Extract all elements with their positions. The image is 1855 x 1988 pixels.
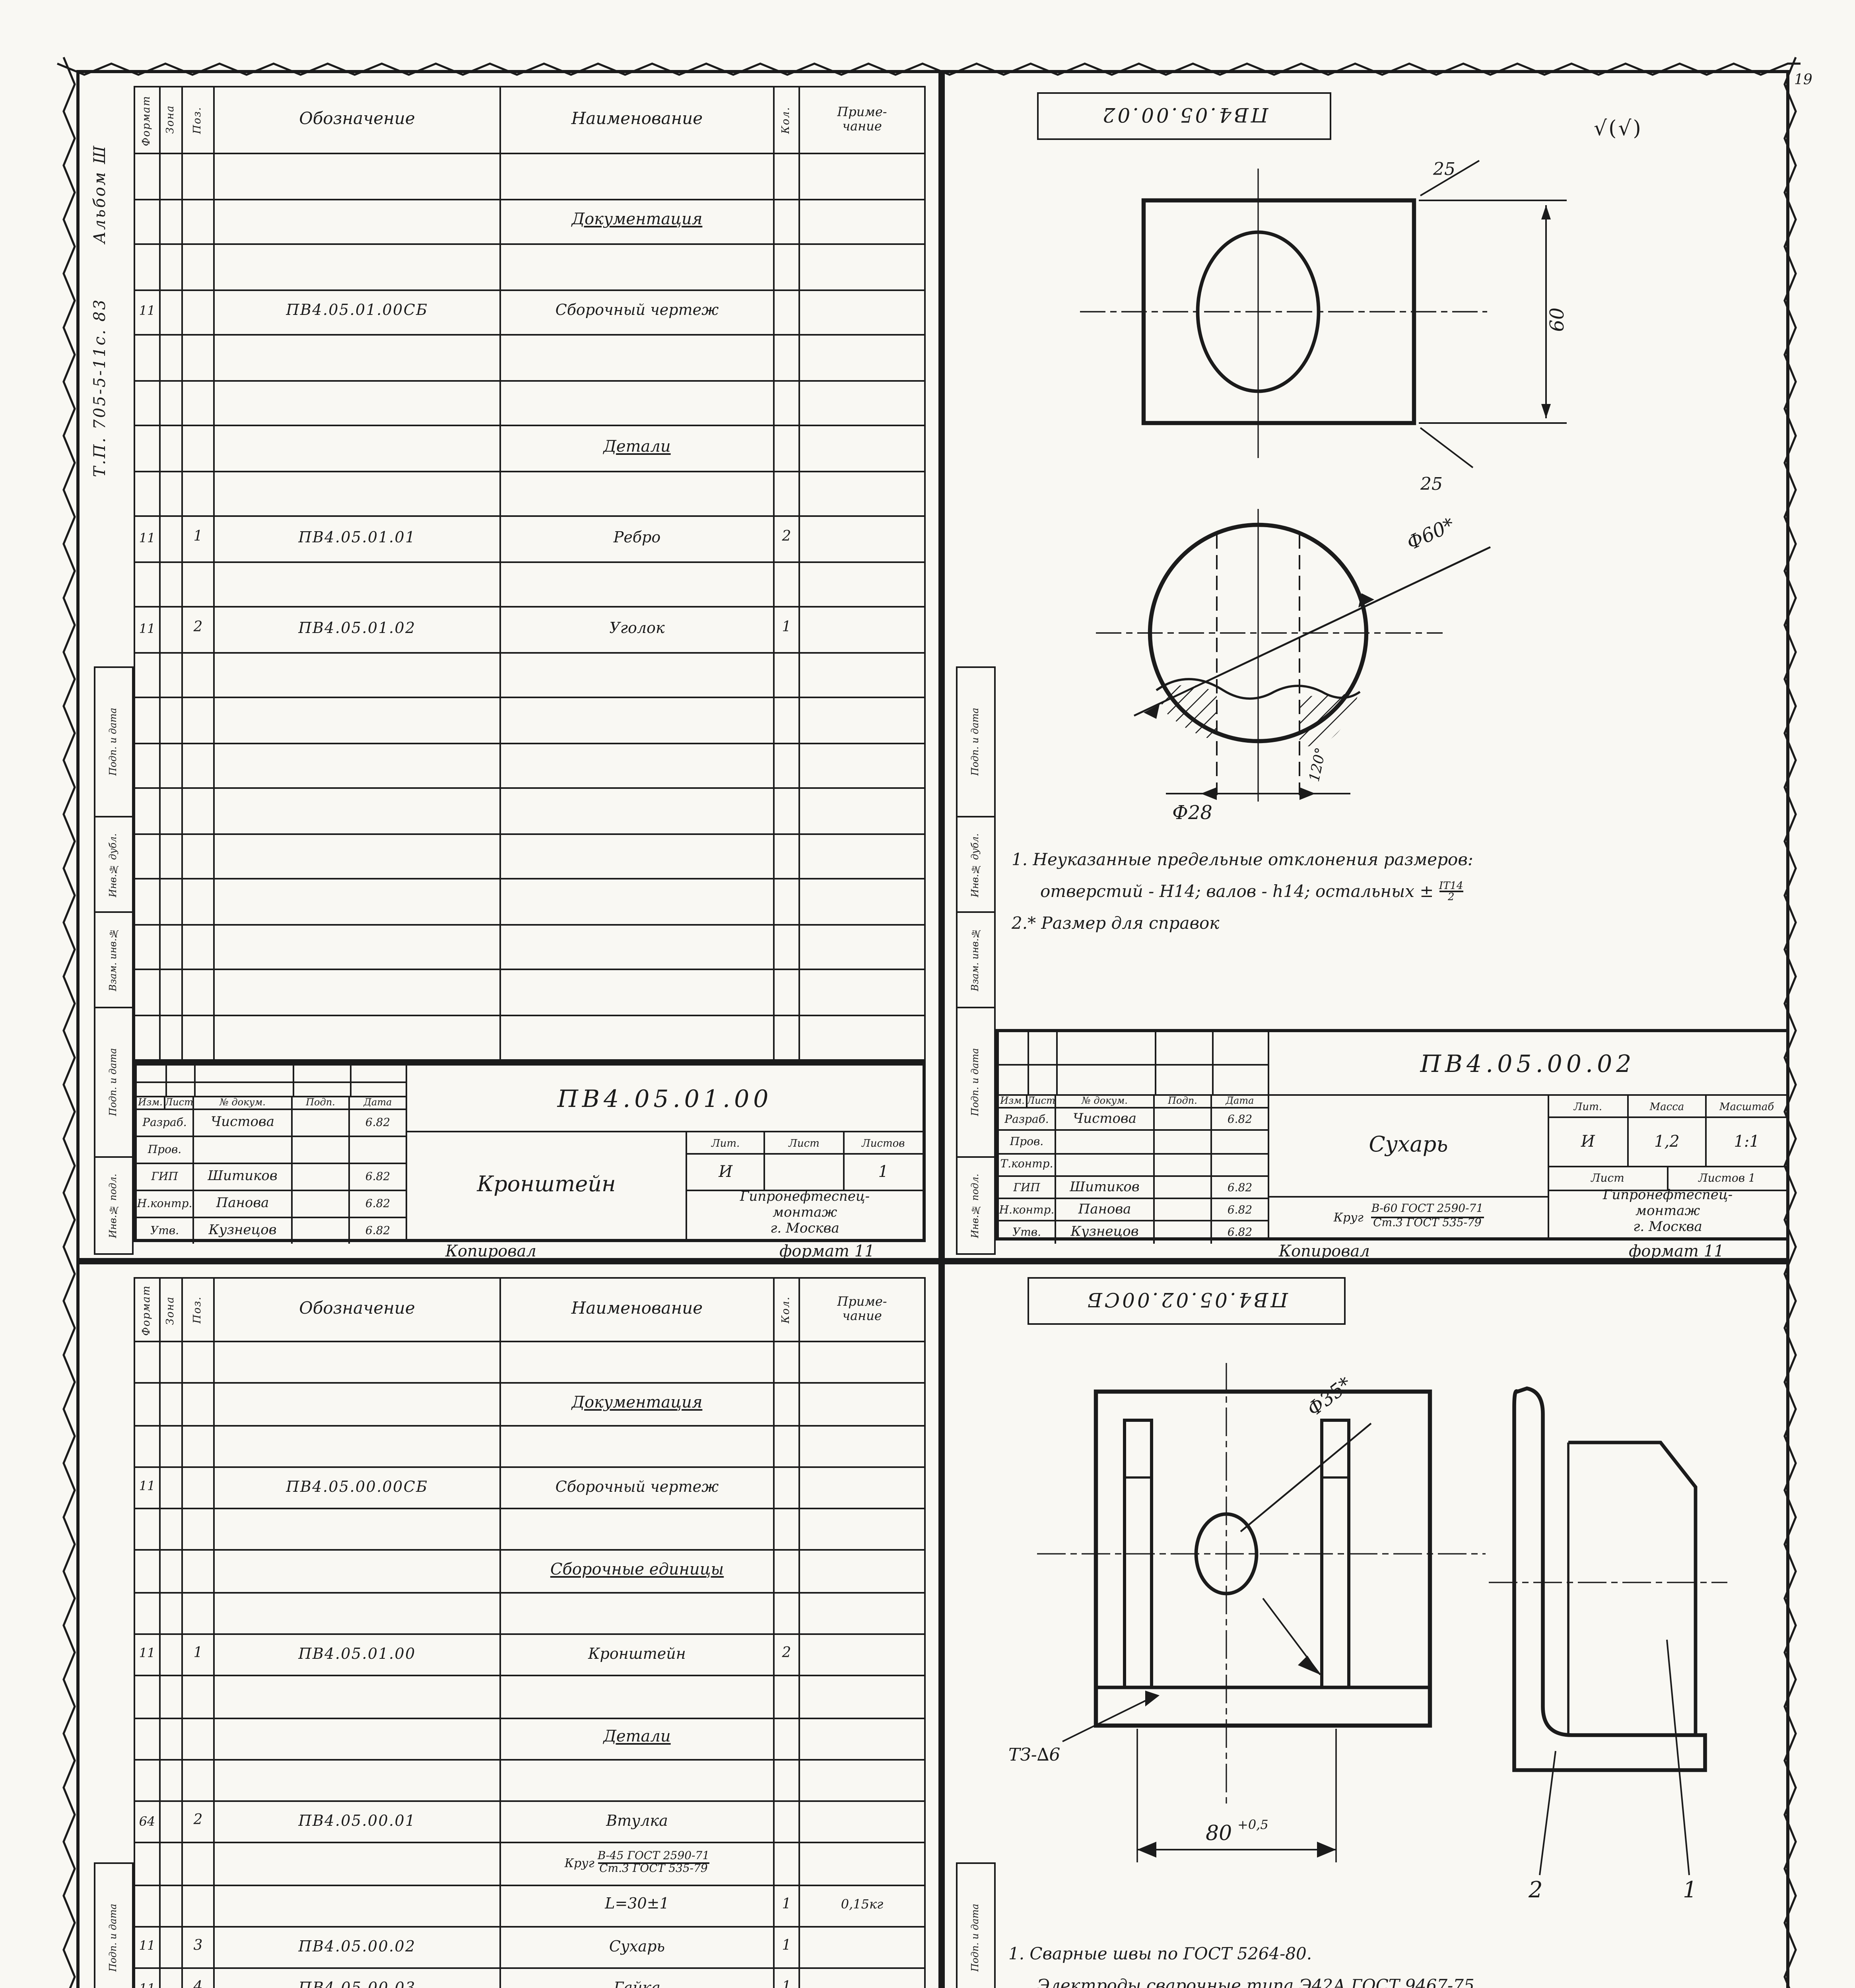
dia-35-label: Ф35* — [1303, 1373, 1356, 1421]
cell-pos — [183, 925, 215, 969]
cell-name — [501, 245, 775, 289]
col-pos-label: Поз. — [192, 1296, 203, 1324]
sign-name — [1056, 1131, 1155, 1152]
sign-name: Панова — [194, 1191, 293, 1217]
col-format-label: Формат — [142, 1285, 152, 1336]
sign-date: 6.82 — [350, 1191, 406, 1217]
cell-note — [800, 1510, 924, 1550]
cell-note — [800, 154, 924, 198]
cell-pos — [183, 744, 215, 787]
cell-zone — [161, 336, 183, 379]
margin-cell-0: Подп. и дата — [95, 1864, 132, 1988]
cell-zone — [161, 1551, 183, 1592]
arrowhead — [1298, 1656, 1320, 1675]
cell-pos — [183, 1718, 215, 1759]
lit-values: И 1,2 1:1 — [1549, 1118, 1786, 1167]
cell-format: 11 — [135, 1969, 161, 1988]
grid-line — [137, 1081, 406, 1083]
sign-name: Чистова — [1056, 1109, 1155, 1130]
cell-format — [135, 154, 161, 198]
cell-zone — [161, 517, 183, 561]
cell-format — [135, 1510, 161, 1550]
cell-format — [135, 1551, 161, 1592]
cell-name: Детали — [501, 1718, 775, 1759]
sign-header-2: № докум. — [1056, 1096, 1155, 1107]
lit-value: И — [687, 1155, 765, 1190]
col-format: Формат — [135, 1279, 161, 1341]
arrowhead — [1317, 1842, 1336, 1858]
col-oboz-label: Обозначение — [215, 1279, 501, 1341]
cell-qty — [775, 925, 800, 969]
cell-format — [135, 970, 161, 1014]
margin-cell-1: Инв.№ дубл. — [958, 818, 994, 913]
cell-name: Гайка — [501, 1969, 775, 1988]
cell-format — [135, 1760, 161, 1800]
cell-oboz: ПВ4.05.00.03 — [215, 1969, 501, 1988]
dia-28-label: Ф28 — [1172, 802, 1212, 824]
cell-note — [800, 1343, 924, 1383]
cell-pos — [183, 245, 215, 289]
cell-qty — [775, 1760, 800, 1800]
cell-pos — [183, 200, 215, 243]
sign-row-2: Т.контр. — [999, 1154, 1268, 1176]
cell-name — [501, 698, 775, 742]
cell-zone — [161, 1844, 183, 1884]
cell-oboz — [215, 970, 501, 1014]
section-title: Сборочные единицы — [550, 1563, 724, 1580]
cell-oboz: ПВ4.05.00.01 — [215, 1802, 501, 1842]
grid-line — [1028, 1032, 1029, 1094]
cell-qty — [775, 1551, 800, 1592]
cell-qty: 1 — [775, 1969, 800, 1988]
cell-note — [800, 744, 924, 787]
cell-note — [800, 336, 924, 379]
note-1: 1. Неуказанные предельные отклонения раз… — [1012, 846, 1473, 878]
dim-60: 60 — [1546, 307, 1568, 332]
cell-oboz — [215, 653, 501, 697]
spec-row — [135, 879, 924, 925]
cell-qty — [775, 1015, 800, 1059]
col-qty: Кол. — [775, 1279, 800, 1341]
sign-date — [350, 1137, 406, 1163]
sign-signature — [293, 1137, 350, 1163]
cell-zone — [161, 1635, 183, 1675]
cell-name — [501, 1510, 775, 1550]
col-qty-label: Кол. — [781, 107, 792, 134]
org-line1: Гипронефтеспец- — [1603, 1188, 1733, 1204]
corner-scribble: 19 — [1794, 73, 1812, 89]
sign-date: 6.82 — [1212, 1109, 1268, 1130]
col-note-label: Приме- чание — [800, 1279, 924, 1341]
cell-name: Втулка — [501, 1802, 775, 1842]
cell-zone — [161, 1969, 183, 1988]
cell-format: 11 — [135, 608, 161, 651]
cell-zone — [161, 1885, 183, 1926]
spec-row — [135, 925, 924, 970]
spec-row — [135, 336, 924, 381]
cell-name — [501, 653, 775, 697]
margin-label: Подп. и дата — [970, 1048, 981, 1116]
note-2: 2.* Размер для справок — [1012, 910, 1473, 942]
grid-line — [999, 1064, 1268, 1066]
mass-label: Масса — [1628, 1096, 1707, 1116]
cell-oboz — [215, 1677, 501, 1717]
scale-value: 1:1 — [1707, 1118, 1786, 1166]
part-name: Кронштейн — [407, 1132, 687, 1239]
cell-name — [501, 1343, 775, 1383]
col-zone: Зона — [161, 87, 183, 153]
cell-zone — [161, 472, 183, 515]
sign-name: Шитиков — [1056, 1177, 1155, 1198]
cell-oboz — [215, 1426, 501, 1466]
spec-row: Документация — [135, 200, 924, 245]
cell-zone — [161, 1928, 183, 1968]
cell-name — [501, 154, 775, 198]
cell-format — [135, 381, 161, 425]
sign-header-4: Дата — [1212, 1096, 1268, 1107]
cell-pos — [183, 970, 215, 1014]
margin-cell-0: Подп. и дата — [958, 668, 994, 818]
cell-zone — [161, 1677, 183, 1717]
cell-oboz: ПВ4.05.00.00СБ — [215, 1468, 501, 1508]
sign-role: Утв. — [137, 1218, 194, 1244]
doc-number: ПВ4.05.01.00 — [407, 1066, 923, 1132]
margin-label: Подп. и дата — [108, 1904, 119, 1972]
sign-name — [194, 1137, 293, 1163]
dim-25-top: 25 — [1433, 159, 1455, 179]
sign-role: Т.контр. — [999, 1154, 1056, 1175]
cell-qty — [775, 1384, 800, 1425]
margin-label: Подп. и дата — [108, 708, 119, 776]
spec-body: Документация11ПВ4.05.01.00СБСборочный че… — [135, 154, 924, 1061]
cell-qty: 2 — [775, 517, 800, 561]
section-title: Детали — [603, 1730, 670, 1747]
cell-note — [800, 562, 924, 606]
cell-note — [800, 879, 924, 923]
spec-row: Детали — [135, 426, 924, 472]
cell-name: Документация — [501, 1384, 775, 1425]
list-value — [765, 1155, 844, 1190]
cell-note — [800, 245, 924, 289]
cell-name: Сборочные единицы — [501, 1551, 775, 1592]
col-name-label: Наименование — [501, 1279, 775, 1341]
margin-cell-1: Инв.№ дубл. — [95, 818, 132, 913]
cell-oboz — [215, 472, 501, 515]
cell-name: Детали — [501, 426, 775, 470]
cell-name — [501, 472, 775, 515]
sign-name: Кузнецов — [194, 1218, 293, 1244]
arrowhead — [1201, 787, 1217, 800]
cell-zone — [161, 1468, 183, 1508]
lit-block: Лит. Лист Листов И 1 Гипронефтеспец- мон… — [687, 1132, 923, 1239]
notes: 1. Сварные швы по ГОСТ 5264-80. Электрод… — [1008, 1940, 1480, 1988]
cell-format — [135, 426, 161, 470]
cell-oboz — [215, 381, 501, 425]
cell-zone — [161, 608, 183, 651]
cell-pos — [183, 1343, 215, 1383]
cell-qty — [775, 1802, 800, 1842]
spec-row: 113ПВ4.05.00.02Сухарь1 — [135, 1928, 924, 1969]
sign-signature — [1155, 1222, 1212, 1243]
note-1b-text: отверстий - Н14; валов - h14; остальных … — [1040, 883, 1434, 902]
spec-row — [135, 1015, 924, 1061]
sign-signature — [1155, 1131, 1212, 1152]
spec-row — [135, 1510, 924, 1551]
rotated-doc-stamp: ПВ4.05.02.00СБ — [1028, 1277, 1346, 1325]
sheet-spec-styazhnoe: Подп. и датаИнв.№ дубл.Взам. инв.№Подп. … — [76, 1261, 942, 1988]
cell-zone — [161, 1802, 183, 1842]
cell-note — [800, 1551, 924, 1592]
margin-cell-2: Взам. инв.№ — [958, 913, 994, 1008]
angle-label: 120° — [1306, 746, 1329, 783]
cell-pos — [183, 834, 215, 878]
drawing-kronshtein: Ф35* 80 +0,5 ТЗ-∆6 2 1 — [1008, 1344, 1740, 1916]
org-line2: монтаж — [773, 1206, 837, 1222]
cell-name: Кронштейн — [501, 1635, 775, 1675]
col-qty: Кол. — [775, 87, 800, 153]
sign-row-0: Разраб.Чистова6.82 — [137, 1110, 406, 1137]
col-note-label: Приме- чание — [800, 87, 924, 153]
spec-row: КругВ-45 ГОСТ 2590-71Ст.3 ГОСТ 535-79 — [135, 1844, 924, 1885]
cell-note — [800, 1677, 924, 1717]
cell-format — [135, 336, 161, 379]
cell-zone — [161, 381, 183, 425]
paper: Т.П. 705-5-11с. 83 Альбом Ш Работа 15-16… — [0, 0, 1855, 1988]
grid-line — [1155, 1032, 1156, 1094]
cell-qty: 1 — [775, 1928, 800, 1968]
cell-qty — [775, 562, 800, 606]
lit-label: Лит. — [1549, 1096, 1628, 1116]
sign-role: Разраб. — [999, 1109, 1056, 1130]
cell-pos: 3 — [183, 1928, 215, 1968]
material-bottom: Ст.3 ГОСТ 535-79 — [599, 1865, 708, 1877]
sign-role: Н.контр. — [999, 1200, 1056, 1221]
dim-80-tol: +0,5 — [1237, 1817, 1268, 1832]
cell-qty — [775, 1718, 800, 1759]
sign-date — [1212, 1154, 1268, 1175]
org-line3: г. Москва — [770, 1221, 839, 1238]
cell-name — [501, 789, 775, 833]
cell-note — [800, 381, 924, 425]
margin-cell-4: Инв.№ подл. — [958, 1158, 994, 1253]
cell-oboz — [215, 1384, 501, 1425]
cell-zone — [161, 200, 183, 243]
spec-row — [135, 789, 924, 834]
cell-qty — [775, 698, 800, 742]
cell-pos — [183, 653, 215, 697]
sheet-spec-kronshtein: Подп. и датаИнв.№ дубл.Взам. инв.№Подп. … — [76, 70, 942, 1261]
cell-name: Сборочный чертеж — [501, 1468, 775, 1508]
sign-name: Кузнецов — [1056, 1222, 1155, 1243]
cell-pos — [183, 1426, 215, 1466]
cell-format — [135, 653, 161, 697]
cell-format — [135, 1677, 161, 1717]
spec-row — [135, 653, 924, 698]
cell-note — [800, 1718, 924, 1759]
sign-row-2: ГИПШитиков6.82 — [137, 1164, 406, 1191]
org-line3: г. Москва — [1633, 1220, 1702, 1236]
cell-oboz — [215, 245, 501, 289]
cell-note — [800, 200, 924, 243]
dim-25-bot: 25 — [1420, 474, 1443, 494]
cell-name — [501, 336, 775, 379]
cell-format — [135, 562, 161, 606]
cell-zone — [161, 1760, 183, 1800]
material-prefix: Круг — [1334, 1210, 1364, 1225]
callout-2: 2 — [1528, 1877, 1543, 1903]
weld-flag — [1145, 1691, 1160, 1706]
grid-line — [350, 1066, 352, 1096]
spec-row — [135, 744, 924, 789]
weld-leader — [1062, 1695, 1156, 1741]
listov-label: Листов — [844, 1132, 923, 1153]
cell-oboz — [215, 1760, 501, 1800]
margin-label: Подп. и дата — [970, 708, 981, 776]
cell-zone — [161, 1343, 183, 1383]
plate-outline — [1096, 1392, 1430, 1726]
cell-qty — [775, 1426, 800, 1466]
cell-pos — [183, 290, 215, 334]
cell-note — [800, 925, 924, 969]
sign-row-1: Пров. — [999, 1131, 1268, 1154]
grid-line — [1212, 1032, 1214, 1094]
cell-name — [501, 1015, 775, 1059]
roughness-mark: √(√) — [1594, 118, 1643, 142]
plate-side-outline — [1568, 1442, 1696, 1735]
format-label: формат 11 — [1629, 1244, 1724, 1261]
sign-signature — [293, 1191, 350, 1217]
sign-name — [1056, 1154, 1155, 1175]
cell-note — [800, 1635, 924, 1675]
cell-oboz — [215, 1885, 501, 1926]
cell-zone — [161, 1426, 183, 1466]
sign-table: Изм.Лист№ докум.Подп.ДатаРазраб.Чистова6… — [137, 1066, 407, 1239]
cell-pos — [183, 1844, 215, 1884]
cell-zone — [161, 879, 183, 923]
zigzag-edge — [64, 57, 75, 1988]
cell-oboz — [215, 562, 501, 606]
cell-pos: 1 — [183, 517, 215, 561]
cell-zone — [161, 154, 183, 198]
sign-signature — [1155, 1154, 1212, 1175]
cell-format — [135, 1426, 161, 1466]
spec-header: Формат Зона Поз. Обозначение Наименовани… — [135, 87, 924, 154]
cell-format: 64 — [135, 1802, 161, 1842]
sign-row-5: Утв.Кузнецов6.82 — [999, 1222, 1268, 1243]
spec-row: Сборочные единицы — [135, 1551, 924, 1593]
cell-note — [800, 834, 924, 878]
material-fraction: В-60 ГОСТ 2590-71 Ст.3 ГОСТ 535-79 — [1371, 1204, 1483, 1231]
angle-outline — [1514, 1388, 1705, 1770]
cell-note — [800, 1015, 924, 1059]
cell-zone — [161, 653, 183, 697]
sign-header-0: Изм. — [999, 1096, 1028, 1107]
note-1b: отверстий - Н14; валов - h14; остальных … — [1012, 878, 1473, 910]
cell-name — [501, 1426, 775, 1466]
cell-oboz — [215, 200, 501, 243]
spec-row — [135, 1677, 924, 1718]
cell-format — [135, 1343, 161, 1383]
organization: Гипронефтеспец- монтаж г. Москва — [687, 1188, 923, 1239]
cell-note — [800, 1384, 924, 1425]
sign-row-4: Н.контр.Панова6.82 — [999, 1200, 1268, 1222]
material: Круг В-60 ГОСТ 2590-71 Ст.3 ГОСТ 535-79 — [1269, 1198, 1549, 1237]
cell-format — [135, 1593, 161, 1633]
col-format-label: Формат — [142, 95, 152, 146]
cell-oboz: ПВ4.05.01.00 — [215, 1635, 501, 1675]
cell-note — [800, 1969, 924, 1988]
cell-format — [135, 245, 161, 289]
cell-format: 11 — [135, 1928, 161, 1968]
cell-oboz: ПВ4.05.01.01 — [215, 517, 501, 561]
cell-name — [501, 1760, 775, 1800]
spec-row: 11ПВ4.05.01.00СБСборочный чертеж — [135, 290, 924, 336]
hatch-right — [1299, 693, 1358, 747]
cell-format — [135, 925, 161, 969]
spec-row: Документация — [135, 1384, 924, 1426]
cell-zone — [161, 744, 183, 787]
cell-qty — [775, 200, 800, 243]
cell-qty — [775, 290, 800, 334]
cell-note — [800, 1928, 924, 1968]
cell-qty — [775, 789, 800, 833]
cell-format: 11 — [135, 1635, 161, 1675]
cell-note — [800, 1760, 924, 1800]
cell-note — [800, 1593, 924, 1633]
mass-value: 1,2 — [1628, 1118, 1707, 1166]
spec-row: 642ПВ4.05.00.01Втулка — [135, 1802, 924, 1844]
sign-role: Утв. — [999, 1222, 1056, 1243]
cell-zone — [161, 290, 183, 334]
cell-oboz — [215, 834, 501, 878]
cell-format — [135, 744, 161, 787]
callout-leader-1 — [1667, 1640, 1689, 1875]
margin-label: Подп. и дата — [970, 1904, 981, 1972]
cell-format — [135, 200, 161, 243]
sign-date: 6.82 — [1212, 1200, 1268, 1221]
cell-qty — [775, 1677, 800, 1717]
sign-row-4: Утв.Кузнецов6.82 — [137, 1218, 406, 1244]
margin-stamps: Подп. и датаИнв.№ дубл.Взам. инв.№Подп. … — [956, 666, 996, 1255]
cell-name — [501, 925, 775, 969]
lit-value: И — [1549, 1118, 1628, 1166]
sign-signature — [293, 1110, 350, 1136]
cell-pos: 1 — [183, 1635, 215, 1675]
sign-signature — [1155, 1177, 1212, 1198]
sign-role: Пров. — [999, 1131, 1056, 1152]
cell-name — [501, 1593, 775, 1633]
cell-pos: 2 — [183, 1802, 215, 1842]
cell-oboz — [215, 1718, 501, 1759]
margin-label: Взам. инв.№ — [108, 928, 119, 992]
copied-label: Копировал — [445, 1244, 536, 1261]
col-zone: Зона — [161, 1279, 183, 1341]
material-top: В-45 ГОСТ 2590-71 — [598, 1851, 709, 1865]
cell-format — [135, 1718, 161, 1759]
cell-format: 11 — [135, 290, 161, 334]
sign-header-4: Дата — [350, 1097, 406, 1109]
col-zone-label: Зона — [165, 106, 176, 135]
cell-format — [135, 1885, 161, 1926]
scanned-page: Т.П. 705-5-11с. 83 Альбом Ш Работа 15-16… — [0, 0, 1855, 1988]
margin-label: Инв.№ подл. — [108, 1174, 119, 1238]
section-title: Документация — [572, 1396, 703, 1413]
title-block-sukhar: Изм.Лист№ докум.Подп.ДатаРазраб.Чистова6… — [996, 1029, 1789, 1241]
title-block-kronshtein: Изм.Лист№ докум.Подп.ДатаРазраб.Чистова6… — [134, 1062, 926, 1242]
cell-note — [800, 1426, 924, 1466]
cell-oboz: ПВ4.05.01.02 — [215, 608, 501, 651]
lit-block: Лит. Масса Масштаб И 1,2 1:1 Лист Листов… — [1549, 1096, 1786, 1237]
